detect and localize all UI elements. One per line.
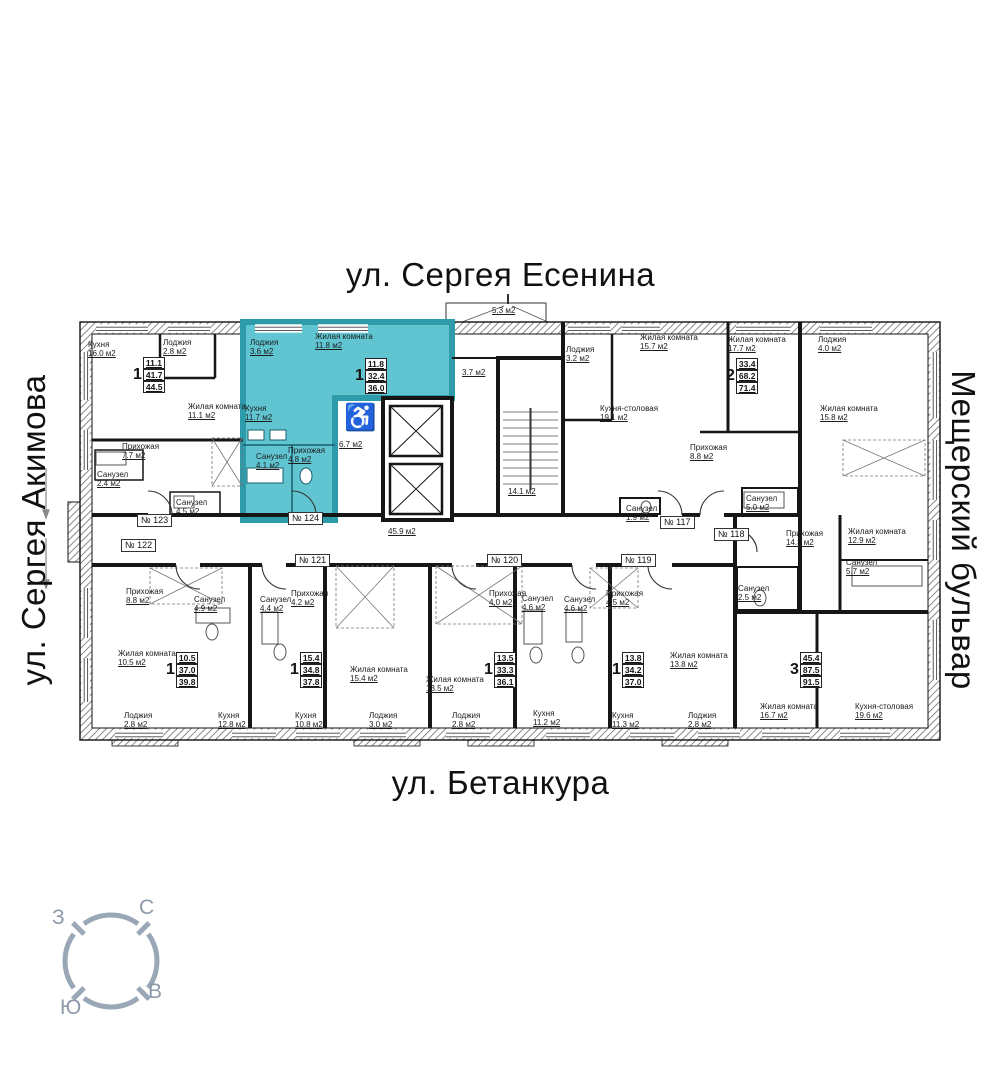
apartment-stats: 345.487.591.5	[790, 652, 822, 688]
room-label: Жилая комната17.7 м2	[728, 335, 786, 353]
apartment-number: № 119	[621, 554, 656, 567]
apartment-number: № 117	[660, 516, 695, 529]
room-label: Жилая комната15.4 м2	[350, 665, 408, 683]
room-label: Прихожая14.3 м2	[786, 529, 823, 547]
room-label: Кухня-столовая19.6 м2	[855, 702, 913, 720]
room-label: Санузел1.9 м2	[626, 504, 657, 522]
apartment-number: № 120	[487, 554, 522, 567]
compass-west: З	[52, 906, 65, 930]
apartment-stats: 111.832.436.0	[355, 358, 387, 394]
room-label: Санузел2.4 м2	[97, 470, 128, 488]
room-label: 6.7 м2	[339, 440, 362, 449]
apartment-stats: 110.537.039.8	[166, 652, 198, 688]
room-label: Санузел5.7 м2	[846, 558, 877, 576]
room-label: Санузел4.6 м2	[522, 594, 553, 612]
street-label-left: ул. Сергея Акимова	[15, 374, 53, 685]
room-label: Прихожая4.5 м2	[606, 589, 643, 607]
room-label: Прихожая4.2 м2	[291, 589, 328, 607]
room-label: Жилая комната13.8 м2	[670, 651, 728, 669]
apartment-number: № 124	[288, 512, 323, 525]
street-label-bottom: ул. Бетанкура	[0, 764, 1001, 802]
room-label: Лоджия3.0 м2	[369, 711, 397, 729]
room-label: Санузел2.5 м2	[738, 584, 769, 602]
room-label: Жилая комната13.5 м2	[426, 675, 484, 693]
room-label: Прихожая8.8 м2	[126, 587, 163, 605]
room-label: Лоджия3.6 м2	[250, 338, 278, 356]
room-label: Лоджия2.8 м2	[124, 711, 152, 729]
room-label: Жилая комната11.1 м2	[188, 402, 246, 420]
compass-east: В	[148, 980, 162, 1004]
room-label: Кухня11.2 м2	[533, 709, 560, 727]
wheelchair-icon: ♿	[344, 404, 376, 430]
compass-rose	[65, 915, 157, 1007]
elevator-shafts	[383, 398, 452, 520]
room-label: 3.7 м2	[462, 368, 485, 377]
street-label-top: ул. Сергея Есенина	[0, 256, 1001, 294]
room-label: Жилая комната16.7 м2	[760, 702, 818, 720]
room-label: Кухня11.3 м2	[612, 711, 639, 729]
room-label: Санузел4.1 м2	[256, 452, 287, 470]
room-label: Санузел4.9 м2	[194, 595, 225, 613]
apartment-stats: 233.468.271.4	[726, 358, 758, 394]
room-label: Кухня16.0 м2	[88, 340, 116, 358]
compass-north: С	[139, 896, 154, 920]
apartment-stats: 115.434.837.8	[290, 652, 322, 688]
apartment-number: № 121	[295, 554, 330, 567]
room-label: Прихожая8.8 м2	[690, 443, 727, 461]
compass-south: Ю	[60, 996, 81, 1020]
room-label: Лоджия2.8 м2	[163, 338, 191, 356]
room-label: Лоджия2.8 м2	[688, 711, 716, 729]
room-label: Прихожая4.8 м2	[288, 446, 325, 464]
room-label: Жилая комната11.8 м2	[315, 332, 373, 350]
room-label: Кухня11.7 м2	[245, 404, 272, 422]
room-label: Санузел4.6 м2	[564, 595, 595, 613]
room-label: Прихожая7.7 м2	[122, 442, 159, 460]
apartment-number: № 123	[137, 514, 172, 527]
room-label: 14.1 м2	[508, 487, 536, 496]
room-label: Лоджия3.2 м2	[566, 345, 594, 363]
room-label: Кухня10.8 м2	[295, 711, 323, 729]
room-label: Лоджия2.8 м2	[452, 711, 480, 729]
room-label: Жилая комната15.7 м2	[640, 333, 698, 351]
room-label: Санузел4.4 м2	[260, 595, 291, 613]
apartment-number: № 118	[714, 528, 749, 541]
room-label: 5.3 м2	[492, 306, 515, 315]
room-label: Кухня12.8 м2	[218, 711, 246, 729]
room-label: Лоджия4.0 м2	[818, 335, 846, 353]
apartment-number: № 122	[121, 539, 156, 552]
room-label: 45.9 м2	[388, 527, 416, 536]
room-label: Санузел5.0 м2	[746, 494, 777, 512]
room-label: Прихожая4.0 м2	[489, 589, 526, 607]
apartment-stats: 111.141.744.5	[133, 357, 165, 393]
room-label: Жилая комната15.8 м2	[820, 404, 878, 422]
apartment-stats: 113.834.237.0	[612, 652, 644, 688]
room-label: Санузел4.5 м2	[176, 498, 207, 516]
street-label-right: Мещерский бульвар	[944, 370, 982, 689]
apartment-stats: 113.533.336.1	[484, 652, 516, 688]
room-label: Кухня-столовая19.1 м2	[600, 404, 658, 422]
room-label: Жилая комната12.9 м2	[848, 527, 906, 545]
